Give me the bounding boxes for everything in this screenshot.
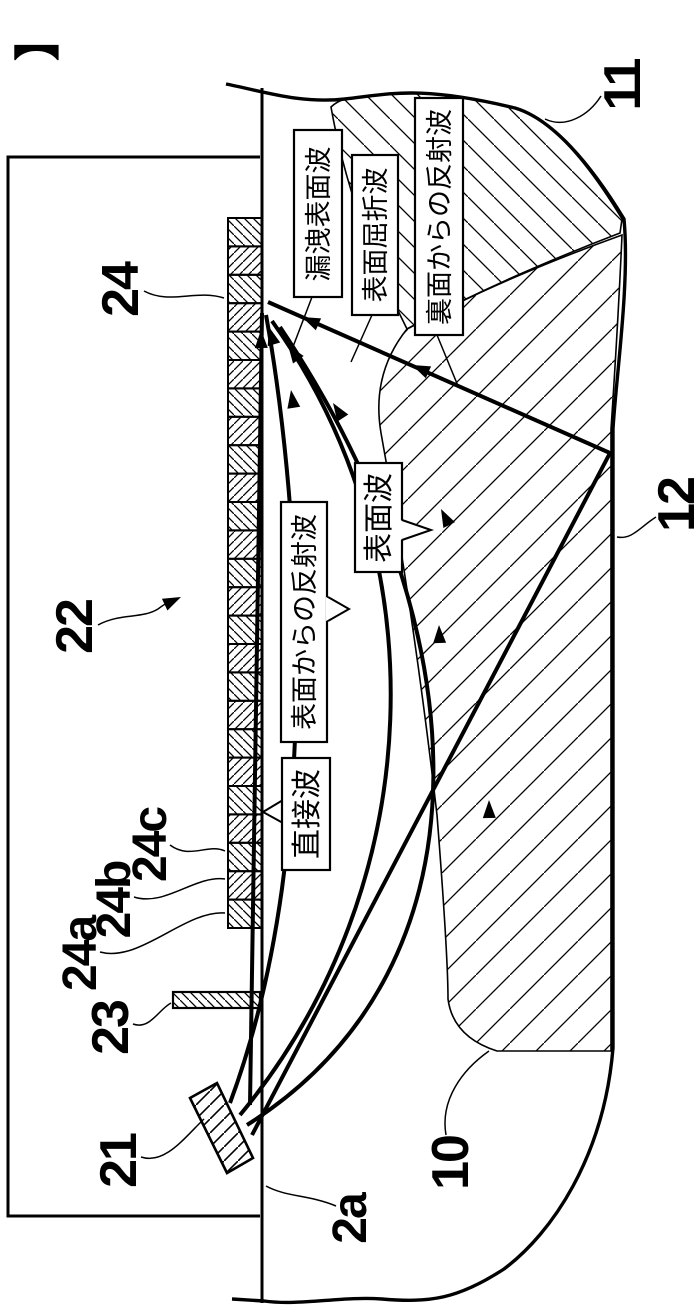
label-box-direct-wave: 直接波 xyxy=(263,758,330,870)
array-element xyxy=(228,701,262,729)
array-element xyxy=(228,616,262,644)
label-box-leaky-surface-wave: 漏洩表面波 xyxy=(294,130,342,297)
array-element xyxy=(228,559,262,587)
label-box-back-reflection-wave: 裏面からの反射波 xyxy=(415,98,463,335)
array-element xyxy=(228,218,262,246)
label-direct-wave: 直接波 xyxy=(291,769,324,859)
label-surface-reflection-wave: 表面からの反射波 xyxy=(290,514,320,730)
ref-label-2a: 2a xyxy=(324,1192,377,1244)
leader-24 xyxy=(144,291,224,298)
array-element xyxy=(228,786,262,814)
label-box-surface-refraction-wave: 表面屈折波 xyxy=(352,155,398,315)
array-element xyxy=(228,360,262,388)
ref-label-11: 11 xyxy=(594,58,652,110)
array-element xyxy=(228,644,262,672)
array-element xyxy=(228,275,262,303)
label-back-reflection-wave: 裏面からの反射波 xyxy=(425,109,455,325)
leader-leaky-surface xyxy=(291,297,312,352)
figure-caption-bracket: 】 xyxy=(12,15,64,61)
array-element xyxy=(228,900,262,928)
ref-label-10: 10 xyxy=(422,1136,480,1190)
array-element xyxy=(228,246,262,274)
receiver-bar xyxy=(173,992,260,1008)
label-leaky-surface-wave: 漏洩表面波 xyxy=(304,147,334,282)
array-element xyxy=(228,587,262,615)
array-element xyxy=(228,417,262,445)
array-element xyxy=(228,502,262,530)
array-element xyxy=(228,388,262,416)
array-element xyxy=(228,729,262,757)
ref-label-12: 12 xyxy=(648,478,697,532)
array-element xyxy=(228,758,262,786)
leader-24c xyxy=(170,845,225,851)
array-element xyxy=(228,445,262,473)
transducer-array xyxy=(228,218,262,928)
ref-label-21: 21 xyxy=(90,1133,148,1188)
ref-label-24a: 24a xyxy=(54,915,107,991)
array-element xyxy=(228,672,262,700)
array-element xyxy=(228,871,262,899)
leader-21 xyxy=(141,1119,204,1158)
ref-label-24: 24 xyxy=(92,261,150,317)
array-element xyxy=(228,332,262,360)
array-element xyxy=(228,474,262,502)
label-surface-wave: 表面波 xyxy=(363,473,396,563)
wedge-transmitter xyxy=(190,1083,253,1173)
array-element xyxy=(228,843,262,871)
rotated-canvas: 漏洩表面波 表面屈折波 裏面からの反射波 表面波 表面からの反射波 xyxy=(8,15,697,1303)
label-box-surface-reflection-wave: 表面からの反射波 xyxy=(281,502,349,742)
array-element xyxy=(228,530,262,558)
label-surface-refraction-wave: 表面屈折波 xyxy=(361,168,391,303)
ref-label-23: 23 xyxy=(82,1000,140,1055)
leader-11 xyxy=(545,96,601,122)
ref-label-22: 22 xyxy=(46,600,104,654)
patent-figure: 漏洩表面波 表面屈折波 裏面からの反射波 表面波 表面からの反射波 xyxy=(0,0,697,1315)
array-element xyxy=(228,303,262,331)
array-element xyxy=(228,814,262,842)
leader-10 xyxy=(445,1051,489,1135)
